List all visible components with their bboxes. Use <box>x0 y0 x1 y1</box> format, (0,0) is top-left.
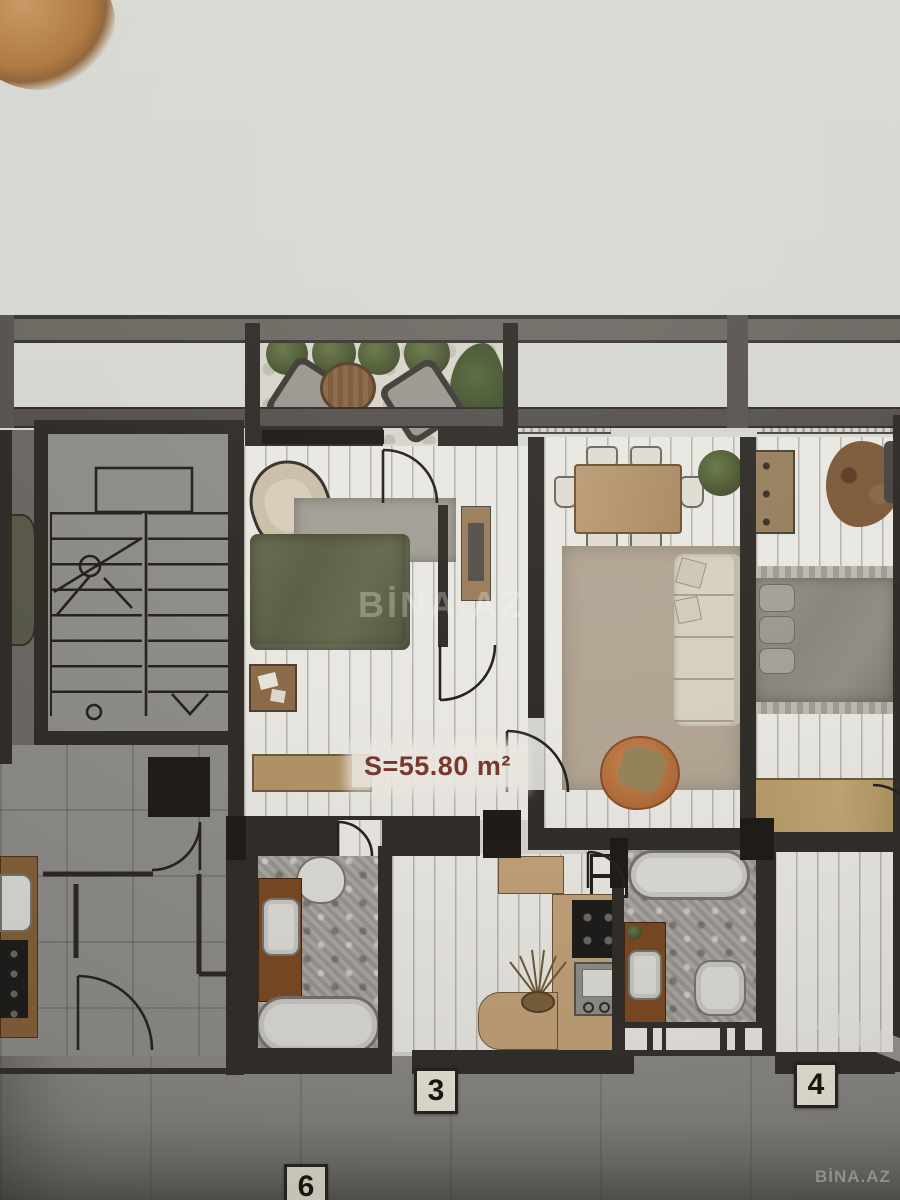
stairs-icon <box>50 512 142 716</box>
bedroom2-wall <box>893 415 900 860</box>
kitchen-peninsula <box>478 992 558 1050</box>
bedroom2-dresser-icon <box>752 778 900 832</box>
bedroom1-desk-icon <box>249 664 297 712</box>
unit-badge-6: 6 <box>284 1164 328 1200</box>
wall-connector <box>727 315 748 428</box>
wall-sign-bar <box>262 430 384 444</box>
accent-armchair-icon <box>600 736 680 810</box>
bed-pillow <box>759 584 795 612</box>
bed-pillow <box>759 616 795 644</box>
wall-pier <box>148 757 210 817</box>
bedroom2-wall <box>740 437 756 842</box>
center-watermark: BİNA.AZ <box>358 584 525 626</box>
stairwell-wall <box>34 420 240 434</box>
sink-faucet <box>599 1002 610 1013</box>
neighbor-sink-icon <box>0 874 32 932</box>
bathroom2-wall <box>612 886 624 1026</box>
living-plant-icon <box>698 450 744 496</box>
wall-connector <box>0 315 14 428</box>
left-edge-wall <box>0 430 12 764</box>
kitchen-cooktop-icon <box>572 900 614 958</box>
desk-papers <box>258 672 279 690</box>
window-slit <box>727 1028 735 1050</box>
sofa-pillow <box>674 596 702 624</box>
console-top <box>468 523 484 581</box>
fingertip-blob <box>0 0 115 90</box>
stairs-icon <box>148 512 236 716</box>
bathroom1-toilet-icon <box>296 856 346 904</box>
bathroom1-wall <box>244 1048 392 1074</box>
kitchen-counter-top <box>498 856 564 894</box>
bathroom1-bathtub-icon <box>256 996 380 1054</box>
area-label: S=55.80 m² <box>352 746 523 787</box>
floor-plan-photo: BİNA.AZ S=55.80 m² 3 4 6 BİNA.AZ <box>0 0 900 1200</box>
bathroom1-sink-icon <box>262 898 300 956</box>
wall-pier <box>226 816 246 860</box>
wall-pier <box>610 838 628 888</box>
unit-badge-4: 4 <box>794 1062 838 1108</box>
stairwell-wall <box>34 731 240 745</box>
window-slit <box>625 1028 647 1050</box>
bedroom2-bench-icon <box>753 450 795 534</box>
living-wall <box>528 828 756 850</box>
outer-wall-band <box>0 315 900 343</box>
bathroom2-sink-icon <box>628 950 662 1000</box>
neighbor-cooktop-icon <box>0 940 28 1018</box>
terrace-wall <box>438 428 518 446</box>
accent-armchair-cushion <box>614 742 670 797</box>
bathroom1-wall <box>244 856 258 1066</box>
stairwell-wall <box>34 420 48 745</box>
sink-faucet <box>583 1002 594 1013</box>
bedroom1-wall <box>228 420 244 860</box>
dining-table-icon <box>574 464 682 534</box>
wall-pier <box>483 810 521 858</box>
bed-runner <box>755 566 895 578</box>
desk-papers <box>270 689 286 703</box>
window-slit <box>653 1028 662 1050</box>
loggia-wall <box>762 840 776 1056</box>
bathroom2-plant-icon <box>627 925 642 940</box>
bed-pillow <box>759 648 795 674</box>
bathroom2-toilet-icon <box>694 960 746 1016</box>
bathroom1-wall <box>378 846 392 1050</box>
window-slit <box>666 1028 720 1050</box>
bed-runner <box>755 702 895 714</box>
hall-wall <box>226 845 244 1075</box>
wall-pier <box>740 818 774 860</box>
living-wall <box>528 437 544 718</box>
bedroom2-bed-icon <box>755 566 895 714</box>
bathroom1-door-gap <box>338 820 382 856</box>
unit-badge-3: 3 <box>414 1068 458 1114</box>
hall-wall-line <box>0 1068 230 1074</box>
corner-watermark: BİNA.AZ <box>815 1167 891 1187</box>
bathroom2-bathtub-icon <box>628 850 750 900</box>
sink-basin <box>582 969 614 997</box>
